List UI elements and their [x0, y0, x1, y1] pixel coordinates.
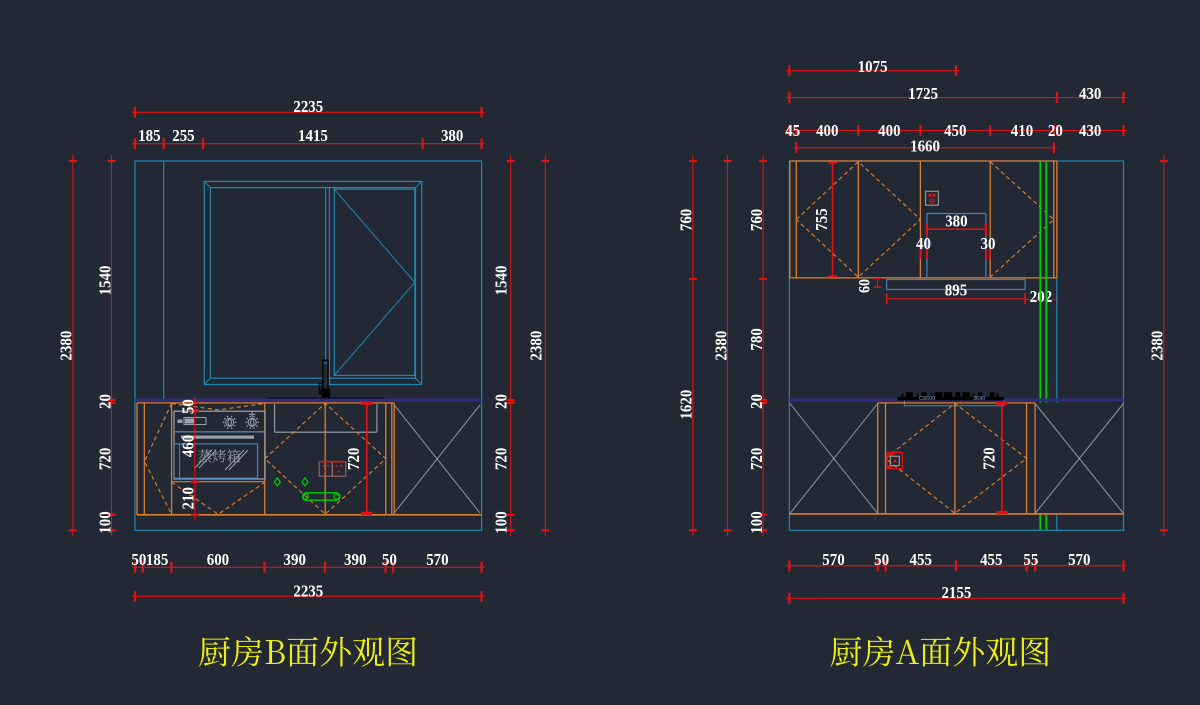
svg-text:2380: 2380	[1148, 331, 1167, 361]
svg-text:45: 45	[785, 121, 800, 140]
svg-text:895: 895	[945, 281, 967, 300]
svg-text:430: 430	[1079, 84, 1101, 103]
svg-text:570: 570	[1068, 550, 1090, 569]
svg-text:450: 450	[944, 121, 966, 140]
svg-text:50: 50	[179, 399, 198, 414]
svg-text:30: 30	[981, 234, 996, 253]
svg-text:600: 600	[207, 550, 229, 569]
svg-text:2380: 2380	[711, 331, 730, 361]
svg-text:430: 430	[1079, 121, 1101, 140]
svg-text:720: 720	[980, 447, 999, 469]
svg-text:720: 720	[95, 448, 114, 470]
svg-text:50: 50	[874, 550, 889, 569]
svg-text:20: 20	[1048, 121, 1063, 140]
svg-text:390: 390	[344, 550, 366, 569]
svg-text:1540: 1540	[492, 266, 511, 296]
svg-text:1660: 1660	[910, 137, 940, 156]
svg-text:1075: 1075	[858, 57, 888, 76]
svg-text:2380: 2380	[57, 331, 76, 361]
svg-text:2155: 2155	[941, 583, 971, 602]
svg-text:460: 460	[179, 435, 198, 457]
svg-text:570: 570	[822, 550, 844, 569]
svg-text:780: 780	[747, 328, 766, 350]
svg-text:755: 755	[812, 208, 831, 230]
svg-text:455: 455	[980, 550, 1002, 569]
svg-text:380: 380	[945, 212, 967, 231]
svg-text:55: 55	[1023, 550, 1038, 569]
svg-text:1620: 1620	[677, 390, 696, 420]
svg-text:400: 400	[816, 121, 838, 140]
svg-text:720: 720	[492, 448, 511, 470]
svg-text:570: 570	[426, 550, 448, 569]
svg-text:20: 20	[747, 394, 766, 409]
svg-text:2235: 2235	[293, 582, 323, 601]
svg-text:2380: 2380	[527, 331, 546, 361]
svg-text:40: 40	[916, 234, 931, 253]
svg-text:410: 410	[1011, 121, 1033, 140]
svg-text:100: 100	[95, 511, 114, 533]
svg-text:1540: 1540	[95, 266, 114, 296]
svg-text:20: 20	[95, 394, 114, 409]
svg-text:720: 720	[747, 448, 766, 470]
svg-text:20: 20	[492, 394, 511, 409]
svg-text:455: 455	[910, 550, 932, 569]
svg-text:760: 760	[677, 209, 696, 231]
svg-text:760: 760	[747, 209, 766, 231]
svg-text:185: 185	[138, 126, 160, 145]
svg-text:1415: 1415	[298, 126, 328, 145]
svg-text:210: 210	[179, 487, 198, 509]
svg-text:3690: 3690	[973, 396, 985, 402]
svg-text:100: 100	[747, 511, 766, 533]
svg-text:C8600: C8600	[919, 396, 935, 402]
svg-text:720: 720	[344, 448, 363, 470]
svg-text:50: 50	[382, 550, 397, 569]
svg-text:50: 50	[131, 550, 146, 569]
svg-text:390: 390	[284, 550, 306, 569]
svg-text:100: 100	[492, 511, 511, 533]
svg-text:60: 60	[857, 279, 874, 293]
svg-text:255: 255	[172, 126, 194, 145]
svg-text:380: 380	[441, 126, 463, 145]
svg-text:400: 400	[878, 121, 900, 140]
svg-text:185: 185	[146, 550, 168, 569]
svg-text:2235: 2235	[293, 97, 323, 116]
svg-text:1725: 1725	[908, 84, 938, 103]
